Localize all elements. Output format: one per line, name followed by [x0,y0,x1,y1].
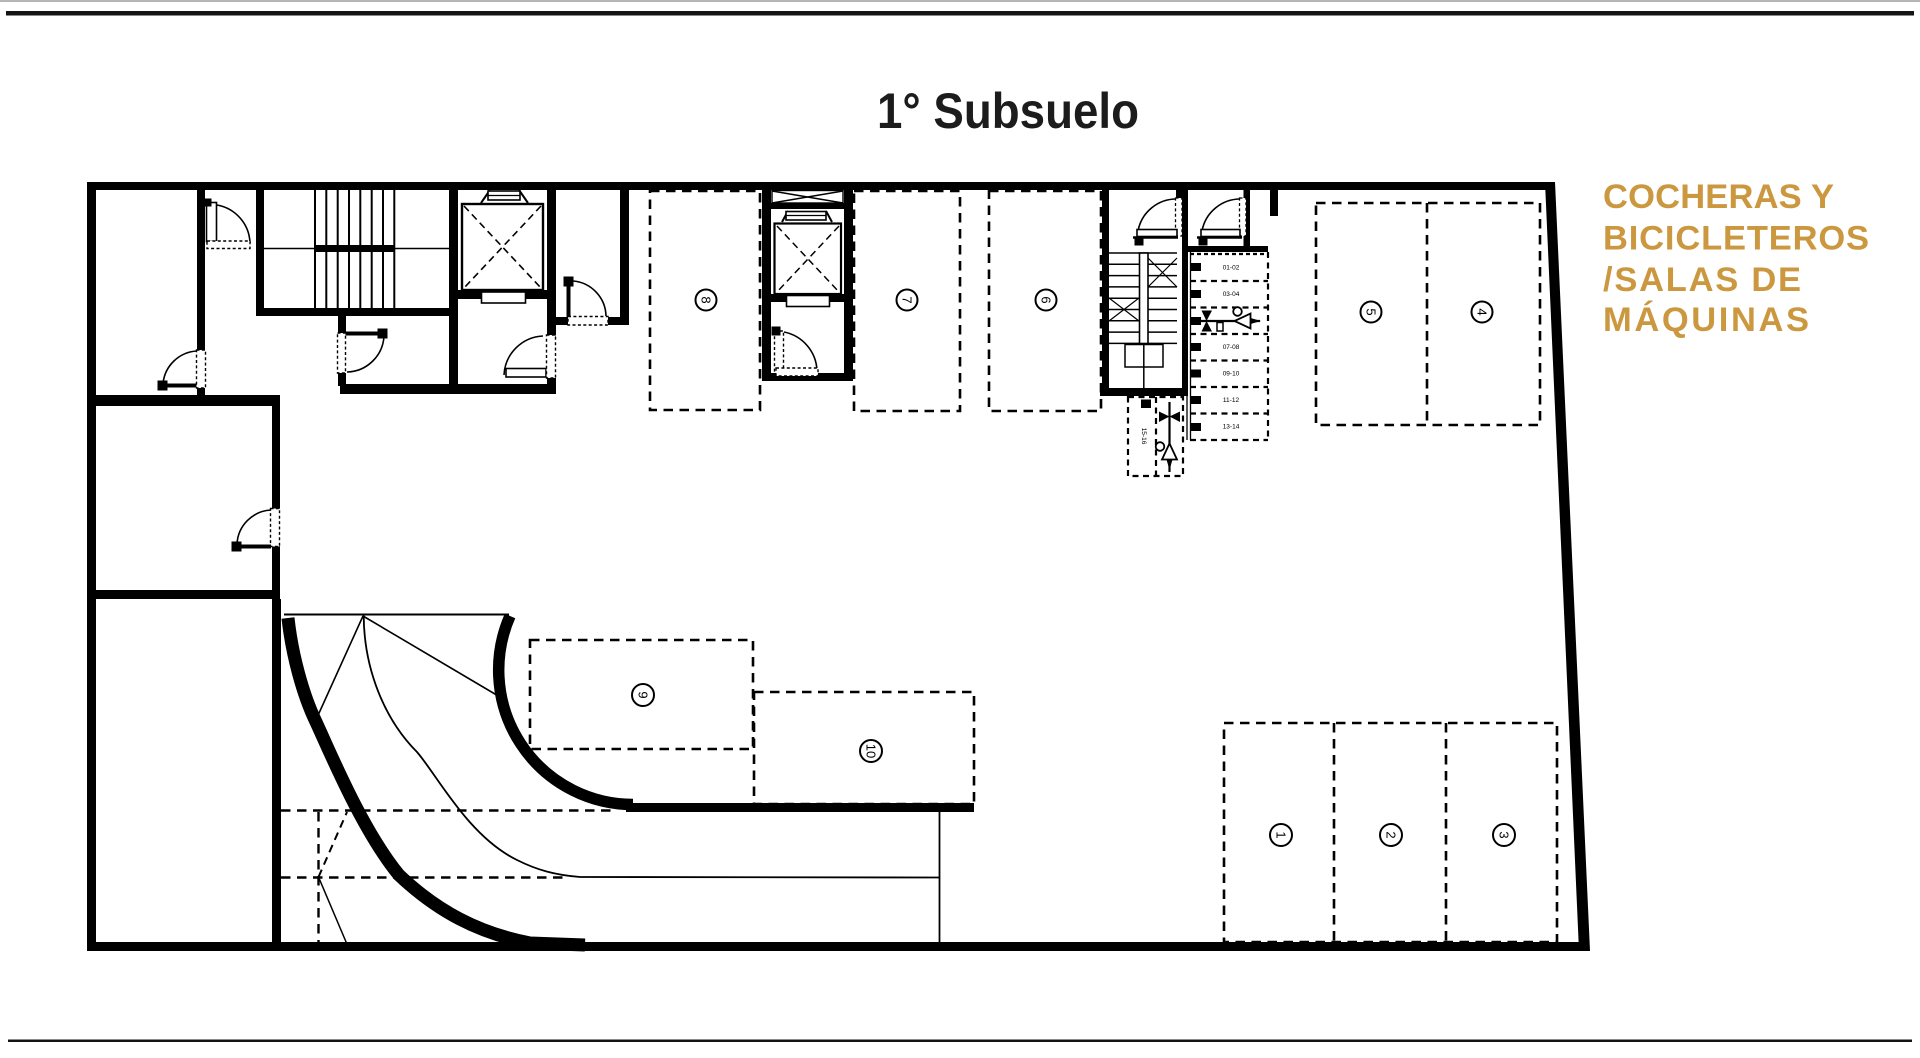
svg-text:9: 9 [636,691,651,698]
svg-text:2: 2 [1384,831,1399,838]
svg-text:5: 5 [1364,308,1379,315]
svg-text:10: 10 [864,744,879,758]
svg-text:/SALAS DE: /SALAS DE [1603,261,1801,299]
svg-text:8: 8 [699,296,714,303]
svg-text:11-12: 11-12 [1223,397,1240,404]
svg-text:3: 3 [1497,831,1512,838]
svg-text:1° Subsuelo: 1° Subsuelo [877,83,1139,139]
svg-text:COCHERAS Y: COCHERAS Y [1603,178,1834,216]
svg-text:MÁQUINAS: MÁQUINAS [1603,299,1809,339]
svg-text:13-14: 13-14 [1223,424,1240,431]
svg-text:15-16: 15-16 [1140,428,1147,445]
svg-text:09-10: 09-10 [1223,371,1240,378]
svg-text:03-04: 03-04 [1223,291,1240,298]
svg-text:7: 7 [900,296,915,303]
svg-text:6: 6 [1039,296,1054,303]
svg-text:4: 4 [1475,308,1490,315]
svg-text:07-08: 07-08 [1223,344,1240,351]
svg-text:BICICLETEROS: BICICLETEROS [1603,220,1869,258]
svg-text:1: 1 [1274,831,1289,838]
svg-text:01-02: 01-02 [1223,265,1240,272]
